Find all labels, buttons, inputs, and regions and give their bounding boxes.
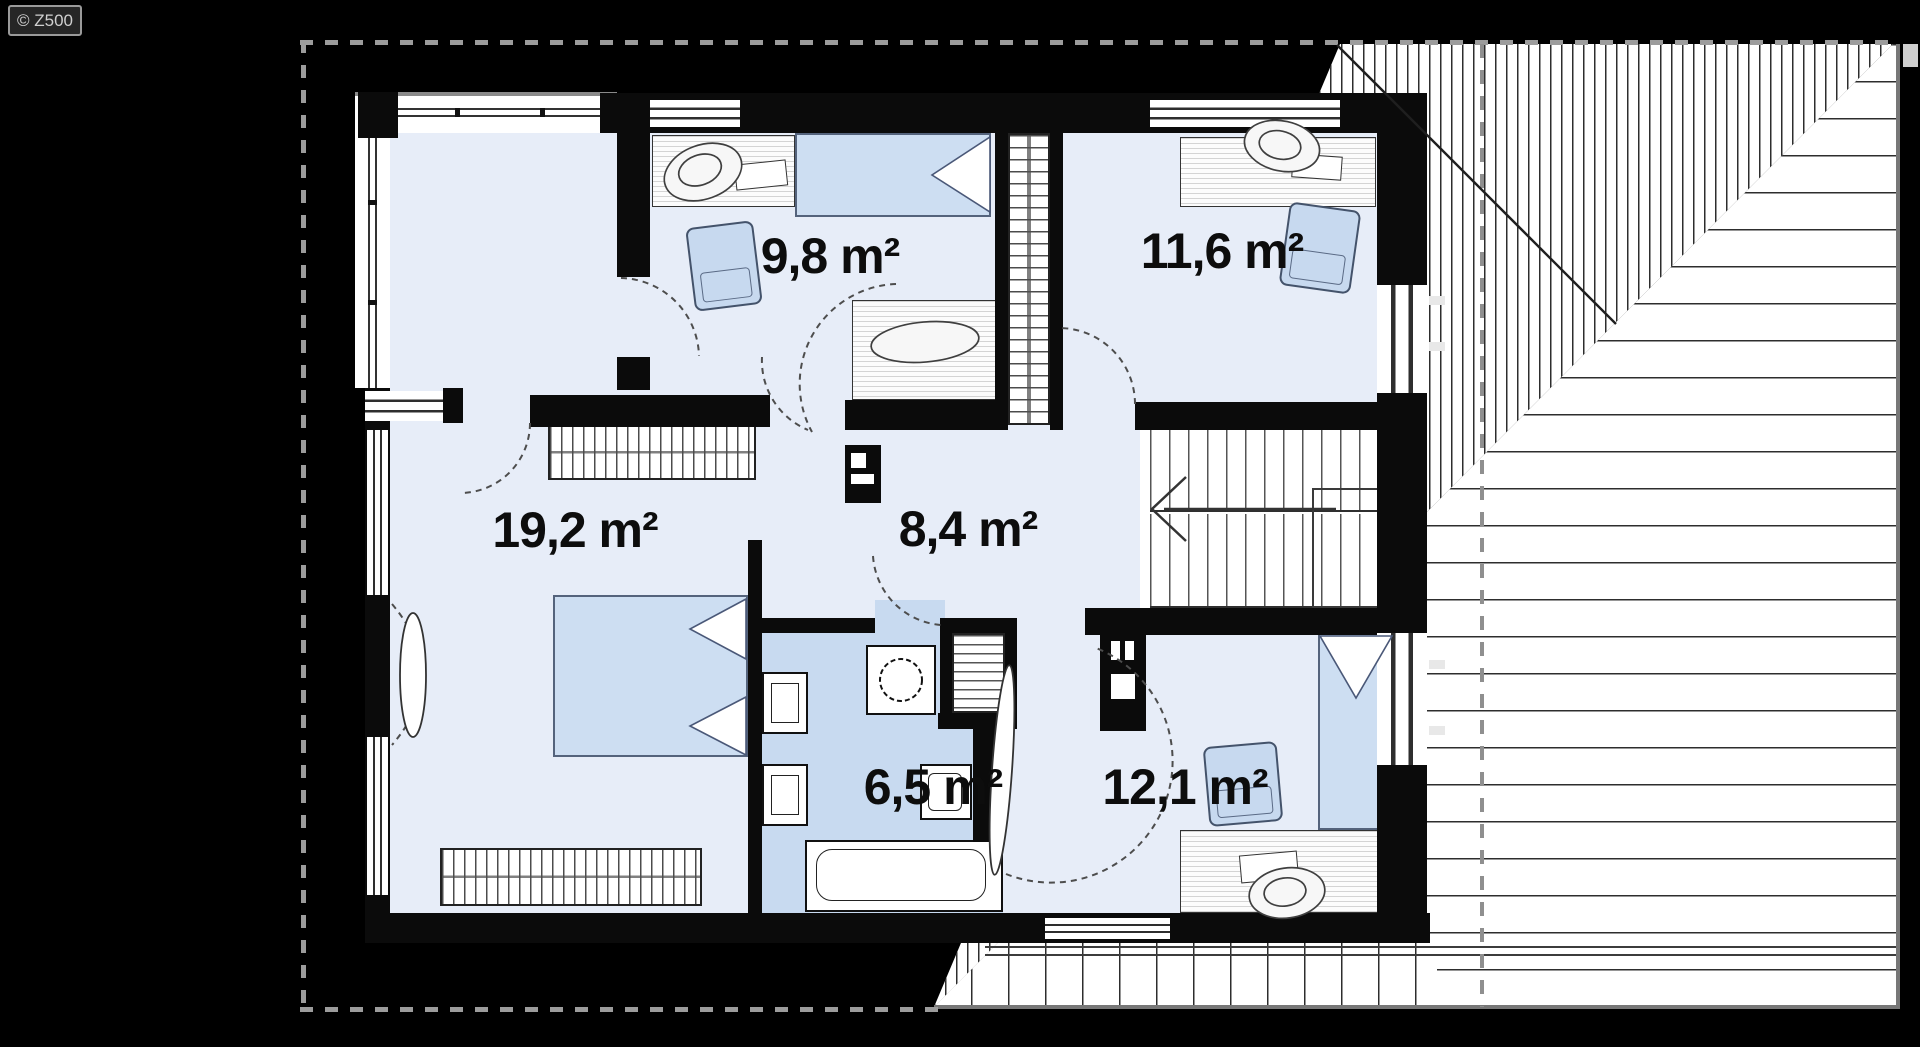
wall-bathroom — [748, 618, 875, 633]
window — [1377, 633, 1427, 765]
wall-interior — [530, 395, 770, 427]
roof-dashed-line — [1480, 44, 1484, 1007]
window — [1150, 100, 1340, 127]
railing-tick — [540, 108, 545, 117]
window — [1045, 918, 1170, 939]
window — [650, 100, 740, 127]
wardrobe-symbol — [440, 848, 702, 906]
roof-edge — [1896, 44, 1900, 1009]
keyboard-symbol — [734, 159, 788, 190]
railing-tick — [368, 200, 377, 205]
dashed-eaves-bottom — [300, 1007, 945, 1012]
wall-balcony — [617, 93, 650, 277]
bed-symbol — [795, 133, 991, 217]
desk-symbol — [1180, 137, 1376, 207]
wall-bottom — [365, 913, 1430, 943]
room-label-bedroom-9-8: 9,8 m² — [660, 228, 1000, 284]
wall-bathroom — [748, 540, 762, 913]
floor-plan-canvas: 9,8 m² 11,6 m² 19,2 m² 8,4 m² 6,5 m² 12,… — [0, 0, 1920, 1047]
roof-edge — [934, 1005, 1900, 1009]
bench-symbol — [852, 300, 998, 400]
room-label-bedroom-19-2: 19,2 m² — [405, 502, 745, 558]
dashed-eaves-top — [300, 40, 1900, 45]
room-label-bedroom-11-6: 11,6 m² — [1052, 223, 1392, 279]
bathtub-symbol — [805, 840, 1003, 912]
keyboard-symbol — [1291, 153, 1343, 180]
wall-bathroom — [940, 618, 1017, 633]
wardrobe-symbol — [548, 425, 756, 480]
balcony-railing — [398, 108, 617, 117]
corner-sliver — [1903, 44, 1918, 67]
roof-bottom-band — [934, 943, 1437, 1007]
railing-tick — [455, 108, 460, 117]
wall-corridor — [845, 400, 1008, 430]
sink-symbol — [762, 672, 808, 734]
window — [367, 430, 388, 595]
wall-balcony — [617, 357, 650, 390]
wall-bedroom — [1085, 608, 1427, 635]
room-label-bedroom-12-1: 12,1 m² — [1015, 759, 1355, 815]
chimney-symbol — [845, 445, 881, 503]
closet-symbol — [1008, 133, 1050, 425]
watermark-badge: © Z500 — [8, 5, 82, 36]
bathroom-door-floor — [875, 600, 945, 633]
window-sill-tick — [1429, 660, 1445, 669]
linen-closet-symbol — [952, 633, 1005, 713]
window-sill-tick — [1429, 342, 1445, 351]
bed-symbol — [553, 595, 748, 757]
room-label-hallway-8-4: 8,4 m² — [798, 501, 1138, 557]
wall-closet — [1050, 133, 1063, 430]
wall-right — [1377, 93, 1427, 943]
dashed-eaves-left — [301, 40, 306, 1012]
window-sill-tick — [1429, 726, 1445, 735]
window — [1377, 285, 1427, 393]
eave-line — [985, 954, 1900, 956]
balcony-post — [358, 92, 398, 138]
computer-symbol — [1239, 851, 1299, 884]
railing-tick — [368, 300, 377, 305]
chimney-symbol — [1100, 633, 1146, 731]
eave-line — [985, 946, 1900, 948]
wall-pier — [443, 388, 463, 423]
balcony-railing — [368, 118, 377, 388]
washing-machine-symbol — [866, 645, 936, 715]
window-sill-tick — [1429, 296, 1445, 305]
window — [365, 391, 443, 421]
wall-corridor — [1135, 402, 1427, 430]
window — [367, 737, 388, 895]
